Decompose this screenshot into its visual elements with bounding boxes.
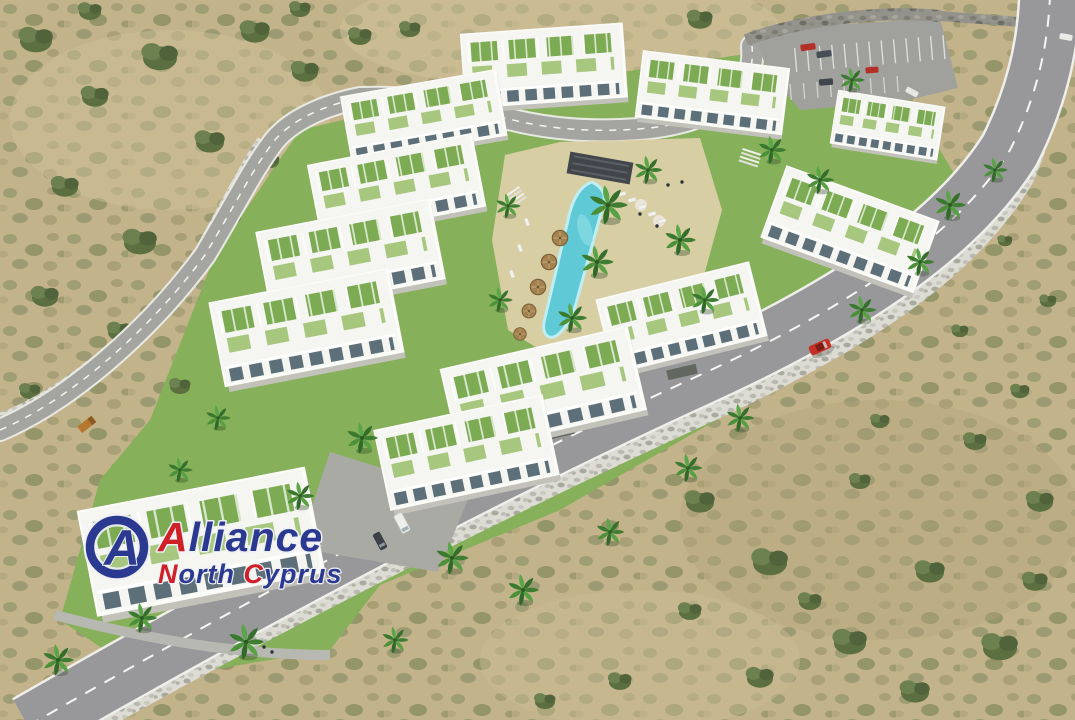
thatch-umbrella [530,279,545,294]
dirt-patch [680,400,1075,640]
watermark-logo: A Alliance North Cyprus [90,514,343,589]
parked-car-red2 [865,67,878,74]
logo-emblem-letter: A [102,520,140,576]
logo-line2-c: C [244,559,265,589]
person [680,180,683,183]
logo-line1-rest: lliance [189,514,324,560]
aerial-development-render: A Alliance North Cyprus [0,0,1075,720]
logo-line2-n: N [158,559,179,589]
person [655,224,658,227]
person [270,650,273,653]
logo-brand-line2: North Cyprus [158,559,343,589]
logo-line1-initial: A [157,514,189,560]
parked-suv-dark [819,78,833,85]
thatch-umbrella [514,328,527,341]
logo-line2-yprus: yprus [262,559,343,589]
scene-svg: A Alliance North Cyprus [0,0,1075,720]
person [666,183,669,186]
logo-line2-orth: orth [179,559,244,589]
thatch-umbrella [552,230,567,245]
logo-brand-line1: Alliance [157,514,323,560]
thatch-umbrella [522,304,536,318]
thatch-umbrella [541,254,556,269]
person [262,645,265,648]
person [638,212,641,215]
